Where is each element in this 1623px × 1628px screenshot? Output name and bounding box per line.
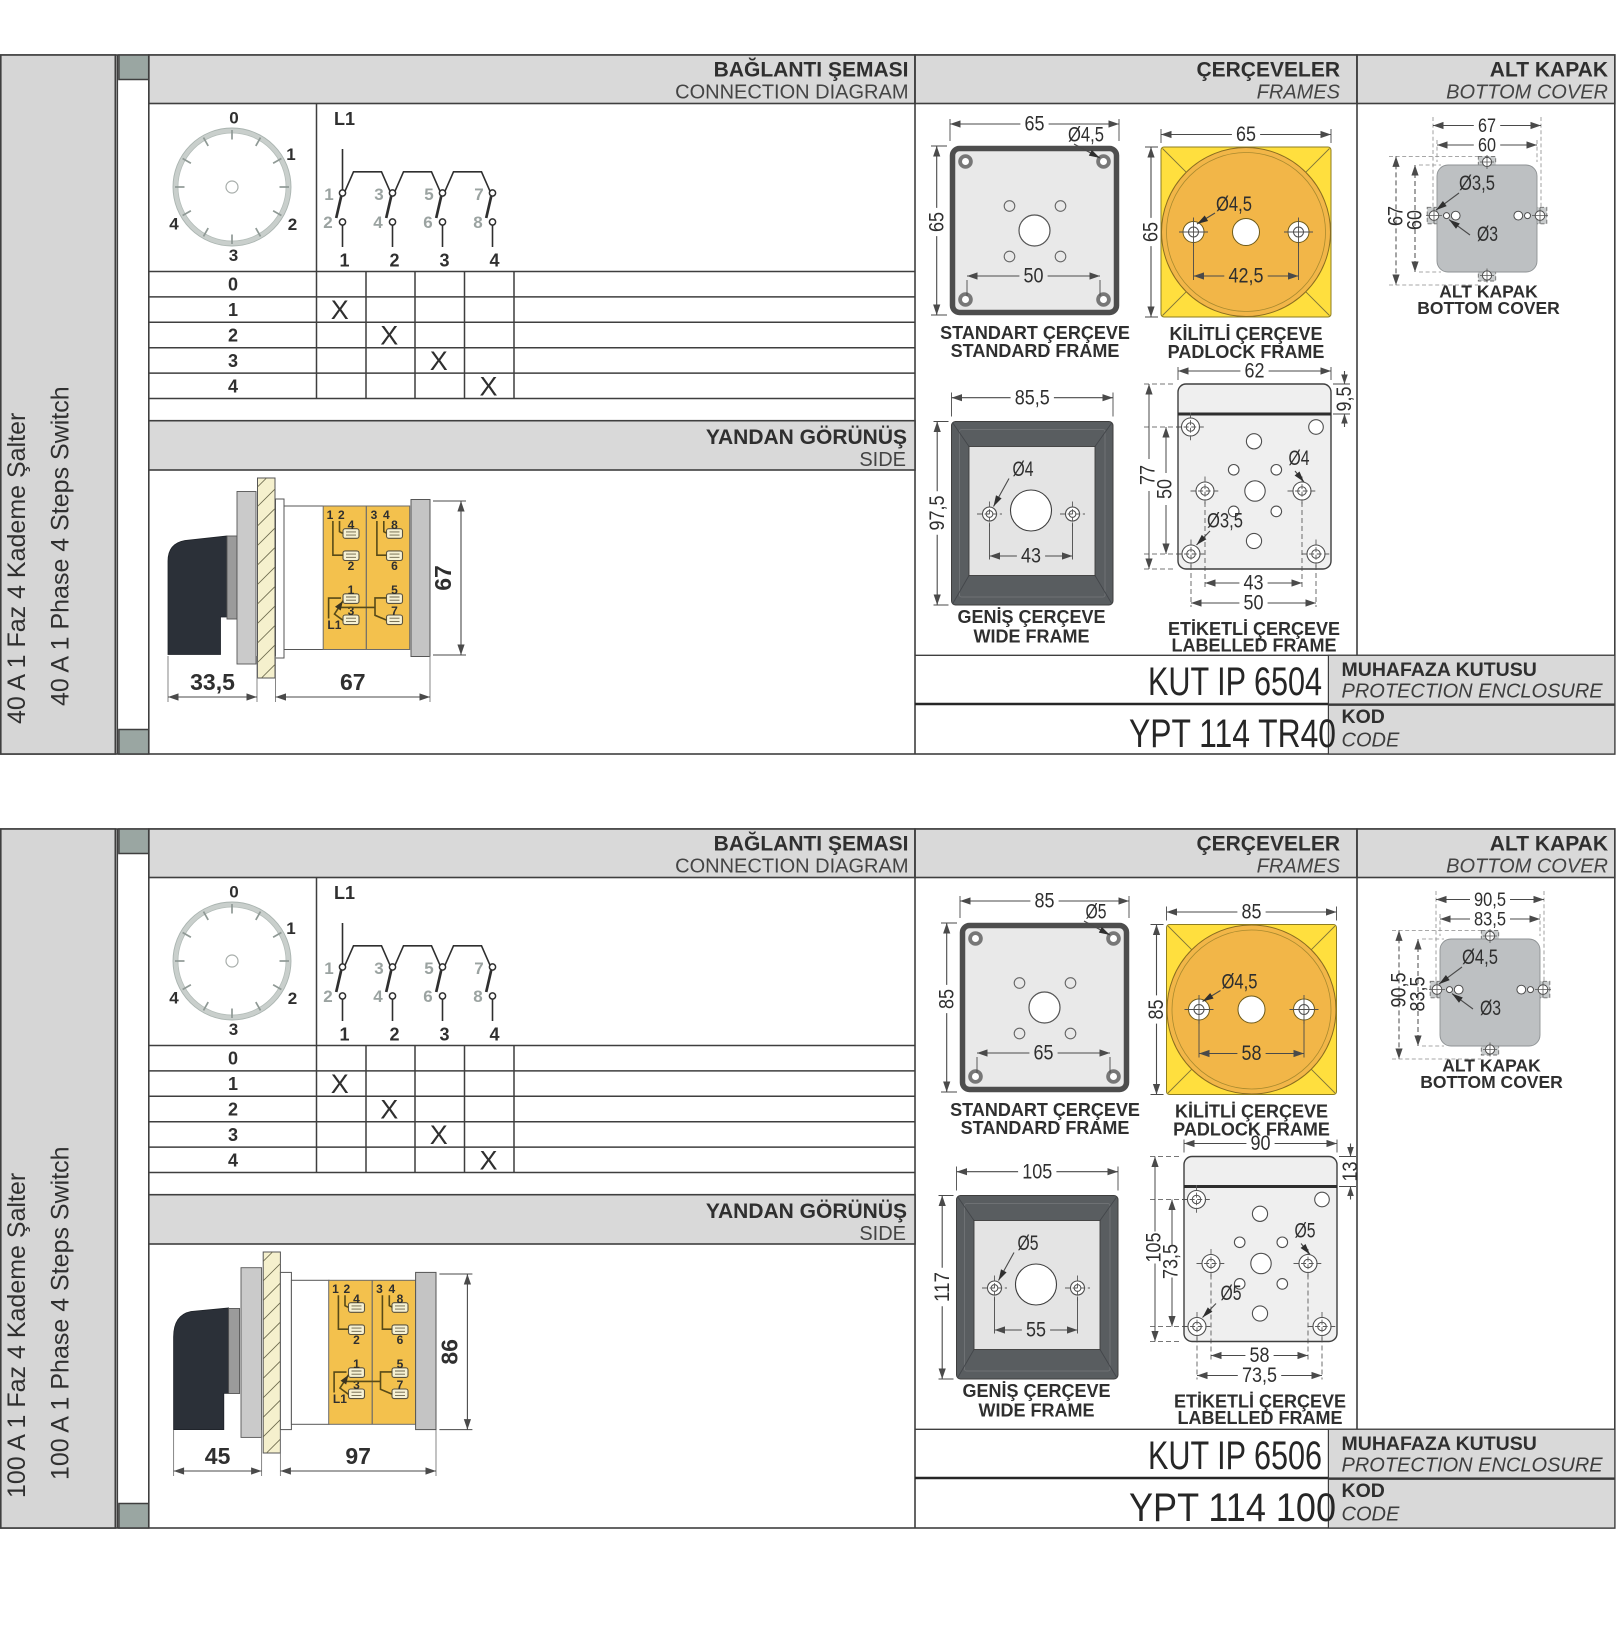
svg-text:KOD: KOD	[1342, 1480, 1385, 1502]
svg-text:3: 3	[439, 251, 449, 271]
svg-text:73,5: 73,5	[1160, 1244, 1183, 1279]
svg-text:40 A 1 Phase 4 Steps Switch: 40 A 1 Phase 4 Steps Switch	[47, 386, 75, 706]
svg-text:SIDE: SIDE	[859, 449, 906, 471]
svg-text:1: 1	[324, 185, 333, 204]
svg-text:BOTTOM COVER: BOTTOM COVER	[1417, 298, 1560, 318]
svg-text:FRAMES: FRAMES	[1257, 856, 1341, 878]
svg-text:3: 3	[228, 351, 238, 371]
svg-text:3: 3	[229, 246, 238, 265]
svg-text:1: 1	[228, 300, 238, 320]
svg-text:Ø3: Ø3	[1477, 223, 1498, 246]
svg-text:4: 4	[383, 508, 390, 522]
svg-text:33,5: 33,5	[190, 669, 235, 695]
svg-text:6: 6	[397, 1333, 404, 1347]
svg-text:73,5: 73,5	[1242, 1364, 1277, 1387]
svg-text:43: 43	[1021, 545, 1041, 568]
svg-text:KOD: KOD	[1342, 706, 1385, 728]
svg-text:L1: L1	[333, 1392, 347, 1406]
svg-text:Ø4: Ø4	[1013, 458, 1034, 481]
svg-text:X: X	[331, 1069, 349, 1099]
svg-text:4: 4	[169, 215, 179, 234]
svg-text:1: 1	[286, 145, 295, 164]
svg-text:ÇERÇEVELER: ÇERÇEVELER	[1196, 833, 1340, 856]
svg-text:8: 8	[473, 987, 482, 1006]
svg-text:62: 62	[1245, 360, 1265, 383]
svg-text:5: 5	[424, 959, 433, 978]
svg-text:3: 3	[376, 1282, 383, 1296]
svg-text:X: X	[380, 1095, 398, 1125]
svg-text:8: 8	[391, 518, 398, 532]
svg-text:4: 4	[373, 987, 383, 1006]
svg-text:2: 2	[343, 1282, 350, 1296]
svg-text:BAĞLANTI ŞEMASI: BAĞLANTI ŞEMASI	[714, 832, 909, 856]
svg-text:42,5: 42,5	[1229, 265, 1264, 288]
svg-text:58: 58	[1242, 1042, 1262, 1065]
svg-text:CODE: CODE	[1342, 730, 1400, 752]
svg-text:65: 65	[1140, 222, 1163, 242]
svg-text:MUHAFAZA KUTUSU: MUHAFAZA KUTUSU	[1342, 1433, 1537, 1455]
svg-text:Ø4: Ø4	[1289, 447, 1310, 470]
svg-text:13: 13	[1339, 1162, 1362, 1182]
svg-text:2: 2	[389, 251, 399, 271]
svg-text:60: 60	[1478, 136, 1496, 157]
svg-text:4: 4	[169, 989, 179, 1008]
svg-text:4: 4	[228, 1150, 238, 1170]
svg-text:Ø3,5: Ø3,5	[1207, 510, 1243, 533]
svg-text:65: 65	[1025, 113, 1045, 136]
svg-text:X: X	[380, 321, 398, 351]
svg-text:MUHAFAZA KUTUSU: MUHAFAZA KUTUSU	[1342, 659, 1537, 681]
svg-text:100 A 1 Phase 4 Steps Switch: 100 A 1 Phase 4 Steps Switch	[47, 1146, 75, 1480]
svg-text:85: 85	[935, 989, 958, 1009]
svg-text:Ø3,5: Ø3,5	[1459, 172, 1495, 195]
svg-text:1: 1	[332, 1282, 339, 1296]
svg-text:83,5: 83,5	[1407, 977, 1430, 1012]
svg-text:4: 4	[389, 1282, 396, 1296]
svg-text:Ø5: Ø5	[1295, 1220, 1316, 1243]
svg-text:5: 5	[391, 583, 398, 597]
svg-text:BOTTOM COVER: BOTTOM COVER	[1420, 1072, 1563, 1092]
svg-text:GENİŞ ÇERÇEVE: GENİŞ ÇERÇEVE	[957, 607, 1105, 627]
svg-text:2: 2	[348, 559, 355, 573]
svg-text:FRAMES: FRAMES	[1257, 82, 1341, 104]
svg-text:67: 67	[430, 565, 456, 591]
svg-text:L1: L1	[327, 618, 341, 632]
svg-text:4: 4	[489, 1025, 499, 1045]
svg-text:PROTECTION ENCLOSURE: PROTECTION ENCLOSURE	[1342, 1455, 1604, 1477]
svg-text:0: 0	[228, 1049, 238, 1069]
svg-text:1: 1	[228, 1074, 238, 1094]
svg-text:L1: L1	[334, 883, 355, 903]
svg-text:STANDARD FRAME: STANDARD FRAME	[961, 1118, 1130, 1138]
svg-text:CONNECTION DIAGRAM: CONNECTION DIAGRAM	[675, 82, 908, 104]
svg-text:Ø4,5: Ø4,5	[1068, 124, 1104, 147]
svg-text:4: 4	[353, 1292, 360, 1306]
svg-text:1: 1	[327, 508, 334, 522]
svg-text:97: 97	[345, 1443, 371, 1469]
svg-text:KİLİTLİ ÇERÇEVE: KİLİTLİ ÇERÇEVE	[1169, 324, 1322, 344]
svg-text:45: 45	[205, 1443, 231, 1469]
svg-text:STANDARD FRAME: STANDARD FRAME	[951, 341, 1120, 361]
svg-text:WIDE FRAME: WIDE FRAME	[974, 627, 1090, 647]
svg-text:X: X	[331, 295, 349, 325]
svg-text:3: 3	[229, 1020, 238, 1039]
svg-text:YPT 114 TR40: YPT 114 TR40	[1129, 712, 1336, 756]
svg-text:3: 3	[348, 604, 355, 618]
svg-text:1: 1	[324, 959, 333, 978]
svg-text:Ø4,5: Ø4,5	[1222, 971, 1258, 994]
svg-text:7: 7	[391, 604, 398, 618]
svg-text:1: 1	[353, 1357, 360, 1371]
svg-text:60: 60	[1404, 210, 1427, 230]
svg-text:8: 8	[397, 1292, 404, 1306]
svg-text:2: 2	[228, 1100, 238, 1120]
svg-text:WIDE FRAME: WIDE FRAME	[979, 1401, 1095, 1421]
svg-text:Ø4,5: Ø4,5	[1462, 946, 1498, 969]
svg-text:6: 6	[423, 213, 432, 232]
svg-text:90: 90	[1251, 1132, 1271, 1155]
svg-text:STANDART ÇERÇEVE: STANDART ÇERÇEVE	[940, 323, 1130, 343]
svg-text:97,5: 97,5	[926, 496, 949, 531]
svg-text:4: 4	[373, 213, 383, 232]
svg-text:ALT KAPAK: ALT KAPAK	[1490, 833, 1608, 856]
svg-text:KUT IP 6504: KUT IP 6504	[1148, 660, 1322, 704]
svg-text:1: 1	[286, 919, 295, 938]
svg-text:Ø5: Ø5	[1018, 1232, 1039, 1255]
svg-text:6: 6	[391, 559, 398, 573]
svg-text:65: 65	[1236, 123, 1256, 146]
svg-text:4: 4	[228, 376, 238, 396]
svg-text:ALT KAPAK: ALT KAPAK	[1490, 59, 1608, 82]
svg-text:85: 85	[1145, 1000, 1168, 1020]
svg-text:85: 85	[1242, 901, 1262, 924]
svg-text:1: 1	[339, 251, 349, 271]
svg-text:7: 7	[397, 1378, 404, 1392]
svg-text:YANDAN GÖRÜNÜŞ: YANDAN GÖRÜNÜŞ	[706, 1200, 907, 1223]
svg-text:YANDAN GÖRÜNÜŞ: YANDAN GÖRÜNÜŞ	[706, 426, 907, 449]
svg-text:2: 2	[288, 215, 297, 234]
svg-text:85: 85	[1035, 890, 1055, 913]
svg-text:SIDE: SIDE	[859, 1223, 906, 1245]
svg-text:85,5: 85,5	[1015, 386, 1050, 409]
svg-text:65: 65	[925, 212, 948, 232]
svg-text:3: 3	[374, 185, 383, 204]
svg-text:0: 0	[229, 109, 238, 128]
svg-text:2: 2	[323, 987, 332, 1006]
svg-text:105: 105	[1022, 1160, 1052, 1183]
svg-text:3: 3	[374, 959, 383, 978]
svg-text:3: 3	[353, 1378, 360, 1392]
svg-text:3: 3	[228, 1125, 238, 1145]
svg-text:83,5: 83,5	[1474, 910, 1506, 931]
svg-text:1: 1	[339, 1025, 349, 1045]
svg-text:LABELLED FRAME: LABELLED FRAME	[1172, 636, 1337, 656]
svg-text:CODE: CODE	[1342, 1504, 1400, 1526]
svg-text:65: 65	[1034, 1042, 1054, 1065]
svg-text:100 A 1 Faz 4 Kademe Şalter: 100 A 1 Faz 4 Kademe Şalter	[3, 1173, 31, 1498]
svg-text:40 A 1 Faz 4 Kademe Şalter: 40 A 1 Faz 4 Kademe Şalter	[3, 413, 31, 724]
svg-text:L1: L1	[334, 109, 355, 129]
svg-text:4: 4	[348, 518, 355, 532]
svg-text:X: X	[430, 346, 448, 376]
svg-text:LABELLED FRAME: LABELLED FRAME	[1178, 1408, 1343, 1428]
svg-text:2: 2	[323, 213, 332, 232]
svg-text:KUT IP 6506: KUT IP 6506	[1148, 1434, 1322, 1478]
svg-text:CONNECTION DIAGRAM: CONNECTION DIAGRAM	[675, 856, 908, 878]
svg-text:2: 2	[338, 508, 345, 522]
svg-text:Ø5: Ø5	[1221, 1282, 1242, 1305]
svg-text:5: 5	[397, 1357, 404, 1371]
svg-text:X: X	[430, 1120, 448, 1150]
svg-text:Ø5: Ø5	[1086, 901, 1107, 924]
svg-text:2: 2	[228, 326, 238, 346]
svg-text:X: X	[479, 371, 497, 401]
svg-text:7: 7	[474, 959, 483, 978]
svg-text:YPT 114 100: YPT 114 100	[1129, 1486, 1336, 1530]
svg-text:Ø3: Ø3	[1480, 997, 1501, 1020]
svg-text:5: 5	[424, 185, 433, 204]
svg-text:50: 50	[1024, 265, 1044, 288]
svg-text:3: 3	[371, 508, 378, 522]
svg-text:2: 2	[288, 989, 297, 1008]
svg-text:7: 7	[474, 185, 483, 204]
svg-text:GENİŞ ÇERÇEVE: GENİŞ ÇERÇEVE	[962, 1381, 1110, 1401]
svg-text:4: 4	[489, 251, 499, 271]
svg-text:8: 8	[473, 213, 482, 232]
svg-text:X: X	[479, 1145, 497, 1175]
svg-text:2: 2	[389, 1025, 399, 1045]
svg-text:6: 6	[423, 987, 432, 1006]
svg-text:50: 50	[1154, 479, 1177, 499]
svg-text:2: 2	[353, 1333, 360, 1347]
svg-text:55: 55	[1026, 1319, 1046, 1342]
svg-text:67: 67	[1478, 116, 1496, 137]
svg-text:STANDART ÇERÇEVE: STANDART ÇERÇEVE	[950, 1100, 1140, 1120]
svg-text:3: 3	[439, 1025, 449, 1045]
svg-text:BAĞLANTI ŞEMASI: BAĞLANTI ŞEMASI	[714, 58, 909, 82]
svg-text:KİLİTLİ ÇERÇEVE: KİLİTLİ ÇERÇEVE	[1175, 1102, 1328, 1122]
svg-text:117: 117	[931, 1272, 954, 1302]
svg-text:BOTTOM COVER: BOTTOM COVER	[1446, 856, 1608, 878]
svg-text:9,5: 9,5	[1333, 387, 1356, 412]
svg-text:1: 1	[348, 583, 355, 597]
svg-text:Ø4,5: Ø4,5	[1216, 193, 1252, 216]
svg-text:PROTECTION ENCLOSURE: PROTECTION ENCLOSURE	[1342, 681, 1604, 703]
svg-text:BOTTOM COVER: BOTTOM COVER	[1446, 82, 1608, 104]
svg-text:67: 67	[340, 669, 366, 695]
svg-text:ÇERÇEVELER: ÇERÇEVELER	[1196, 59, 1340, 82]
svg-text:50: 50	[1244, 592, 1264, 615]
svg-text:90,5: 90,5	[1474, 890, 1506, 911]
svg-text:86: 86	[436, 1339, 462, 1365]
svg-text:0: 0	[229, 883, 238, 902]
svg-text:0: 0	[228, 275, 238, 295]
